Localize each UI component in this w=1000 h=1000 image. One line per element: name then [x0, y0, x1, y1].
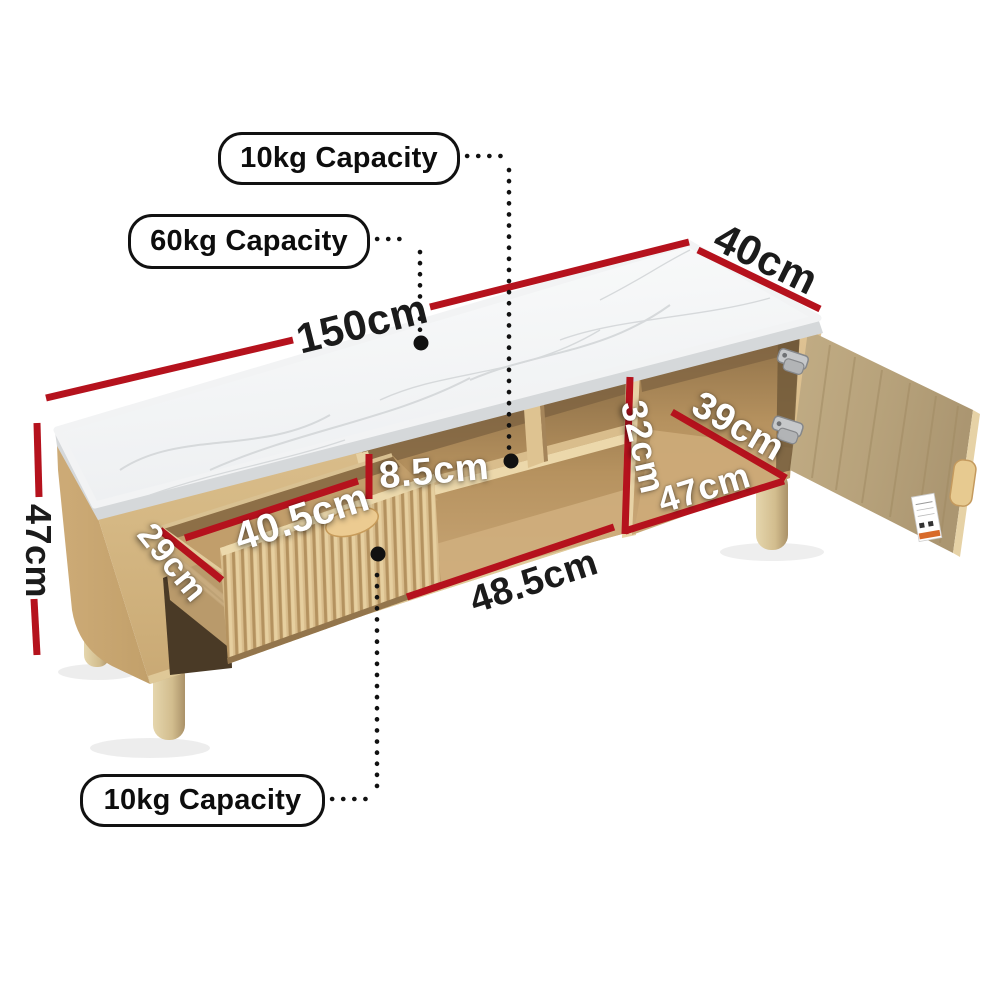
- leader-dot-middle: [414, 336, 429, 351]
- product-dimension-diagram: 10kg Capacity 60kg Capacity 10kg Capacit…: [0, 0, 1000, 1000]
- leader-dot-top: [504, 454, 519, 469]
- capacity-label-bottom: 10kg Capacity: [80, 774, 325, 827]
- cabinet-door: [769, 330, 980, 557]
- capacity-label-top: 10kg Capacity: [218, 132, 460, 185]
- capacity-label-middle: 60kg Capacity: [128, 214, 370, 269]
- capacity-label-top-text: 10kg Capacity: [240, 142, 438, 175]
- capacity-label-middle-text: 60kg Capacity: [150, 225, 348, 258]
- furniture-illustration: [0, 0, 1000, 1000]
- capacity-label-bottom-text: 10kg Capacity: [104, 784, 302, 817]
- dimension-height: 47cm: [17, 504, 59, 598]
- leader-dot-bottom: [371, 547, 386, 562]
- dim-line-height-top: [37, 423, 39, 497]
- dim-line-height-bottom: [34, 599, 37, 655]
